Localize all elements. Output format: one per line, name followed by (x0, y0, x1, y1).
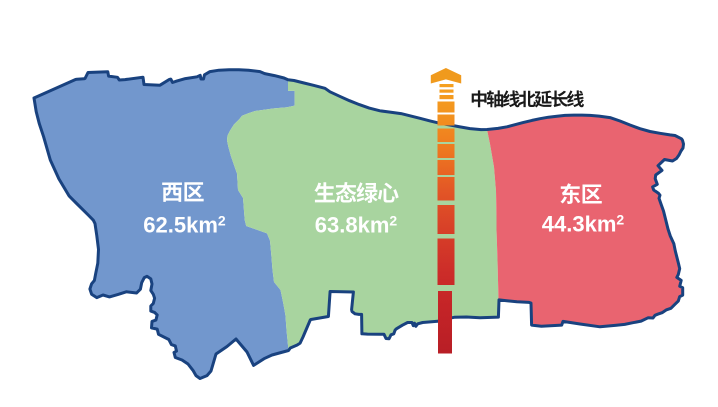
svg-text:44.3km2: 44.3km2 (542, 212, 625, 237)
svg-text:63.8km2: 63.8km2 (315, 213, 398, 238)
svg-text:62.5km2: 62.5km2 (143, 213, 226, 238)
